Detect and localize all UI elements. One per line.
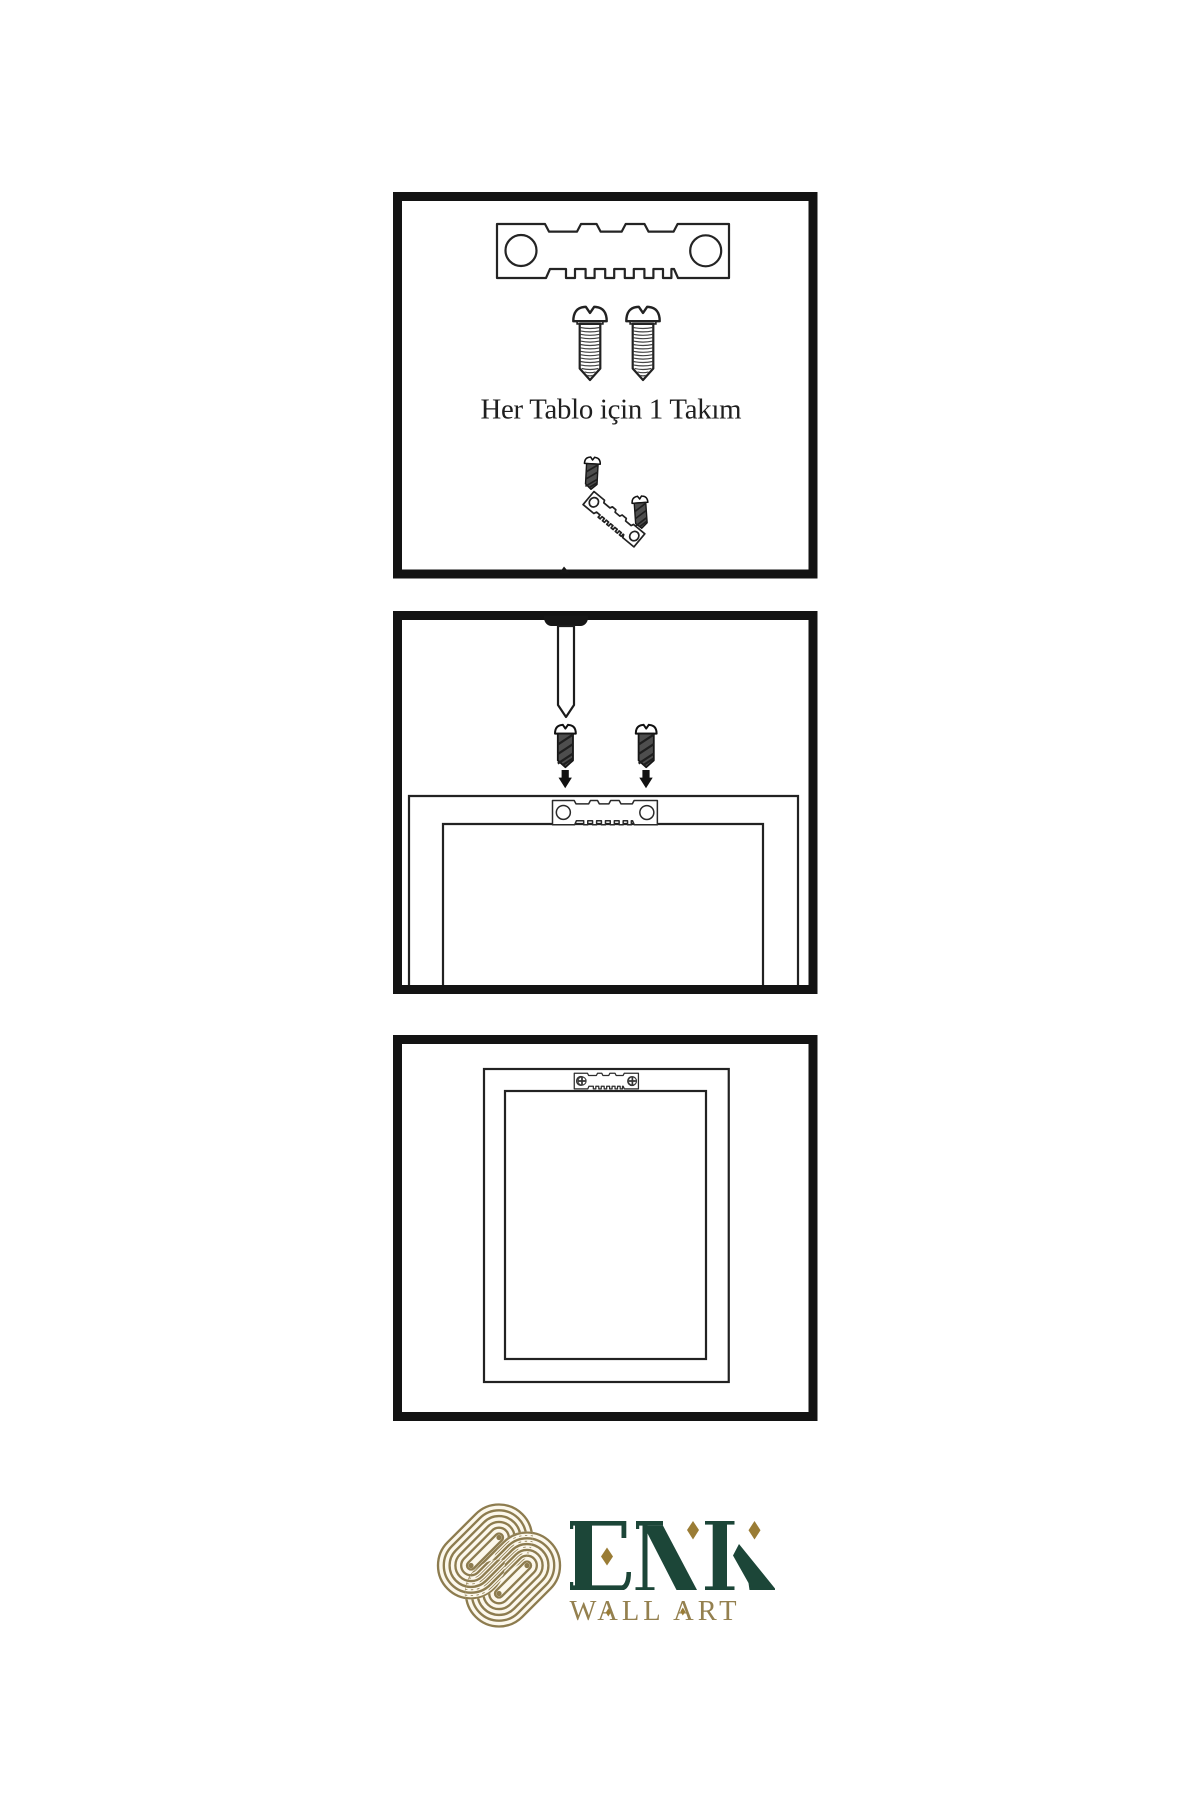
svg-text:Her Tablo için 1 Takım: Her Tablo için 1 Takım xyxy=(481,394,742,426)
